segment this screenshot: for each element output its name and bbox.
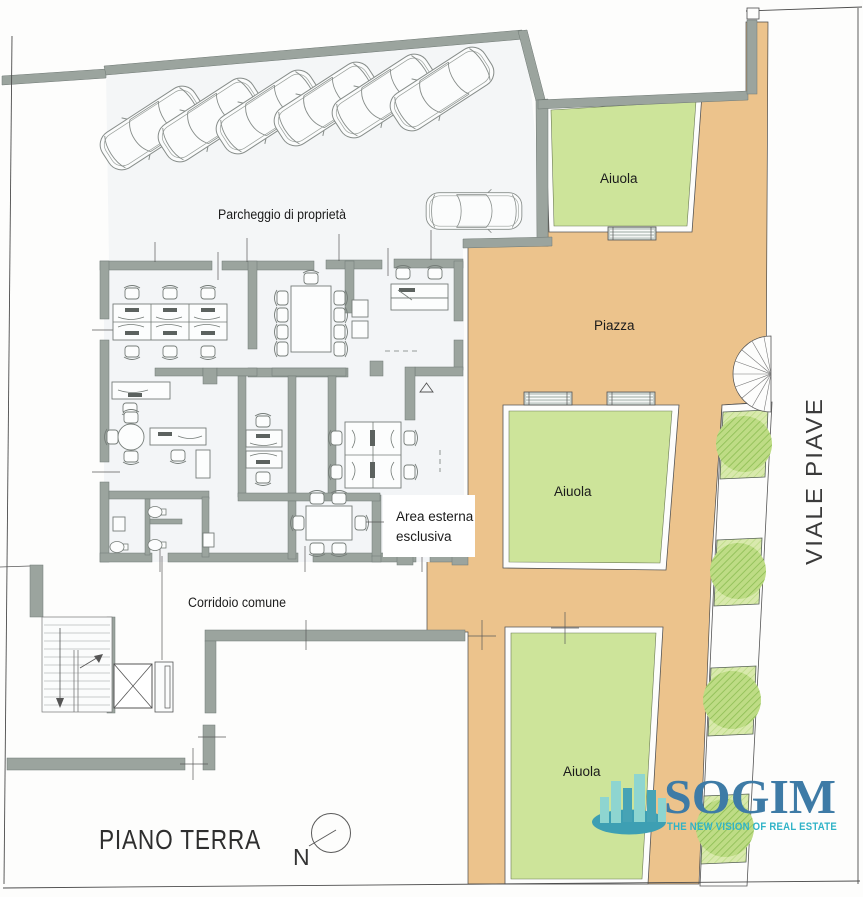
- lawn-bottom-label: Aiuola: [563, 764, 601, 779]
- bench-icon: [608, 227, 656, 240]
- bench-icon: [524, 392, 572, 405]
- floor-plan-svg: Area esterna esclusiva Parcheggio di pro…: [0, 0, 863, 897]
- piazza-label: Piazza: [594, 318, 635, 333]
- car-icon: [426, 189, 522, 233]
- elevator-icon: [114, 664, 152, 708]
- corridor-label: Corridoio comune: [188, 595, 286, 610]
- planter-icon: [716, 410, 772, 479]
- floor-plan-page: Area esterna esclusiva Parcheggio di pro…: [0, 0, 863, 897]
- desk-cluster: [113, 286, 227, 360]
- lawn-top: [545, 94, 702, 232]
- planter-icon: [710, 538, 766, 606]
- bench-icon: [607, 392, 655, 405]
- lawn-middle-label: Aiuola: [554, 484, 592, 499]
- sogim-brand-text: SOGIM: [664, 769, 836, 824]
- north-label: N: [293, 844, 310, 870]
- parking-label: Parcheggio di proprietà: [218, 207, 346, 222]
- lawn-top-label: Aiuola: [600, 171, 638, 186]
- street-name-label: VIALE PIAVE: [801, 397, 827, 565]
- floor-title: PIANO TERRA: [99, 824, 261, 855]
- lawn-bottom: [505, 627, 663, 884]
- external-area-label-line1: Area esterna: [396, 509, 474, 524]
- external-area-label-line2: esclusiva: [396, 529, 452, 544]
- sogim-tagline-text: THE NEW VISION OF REAL ESTATE: [667, 821, 837, 833]
- planter-icon: [703, 666, 761, 736]
